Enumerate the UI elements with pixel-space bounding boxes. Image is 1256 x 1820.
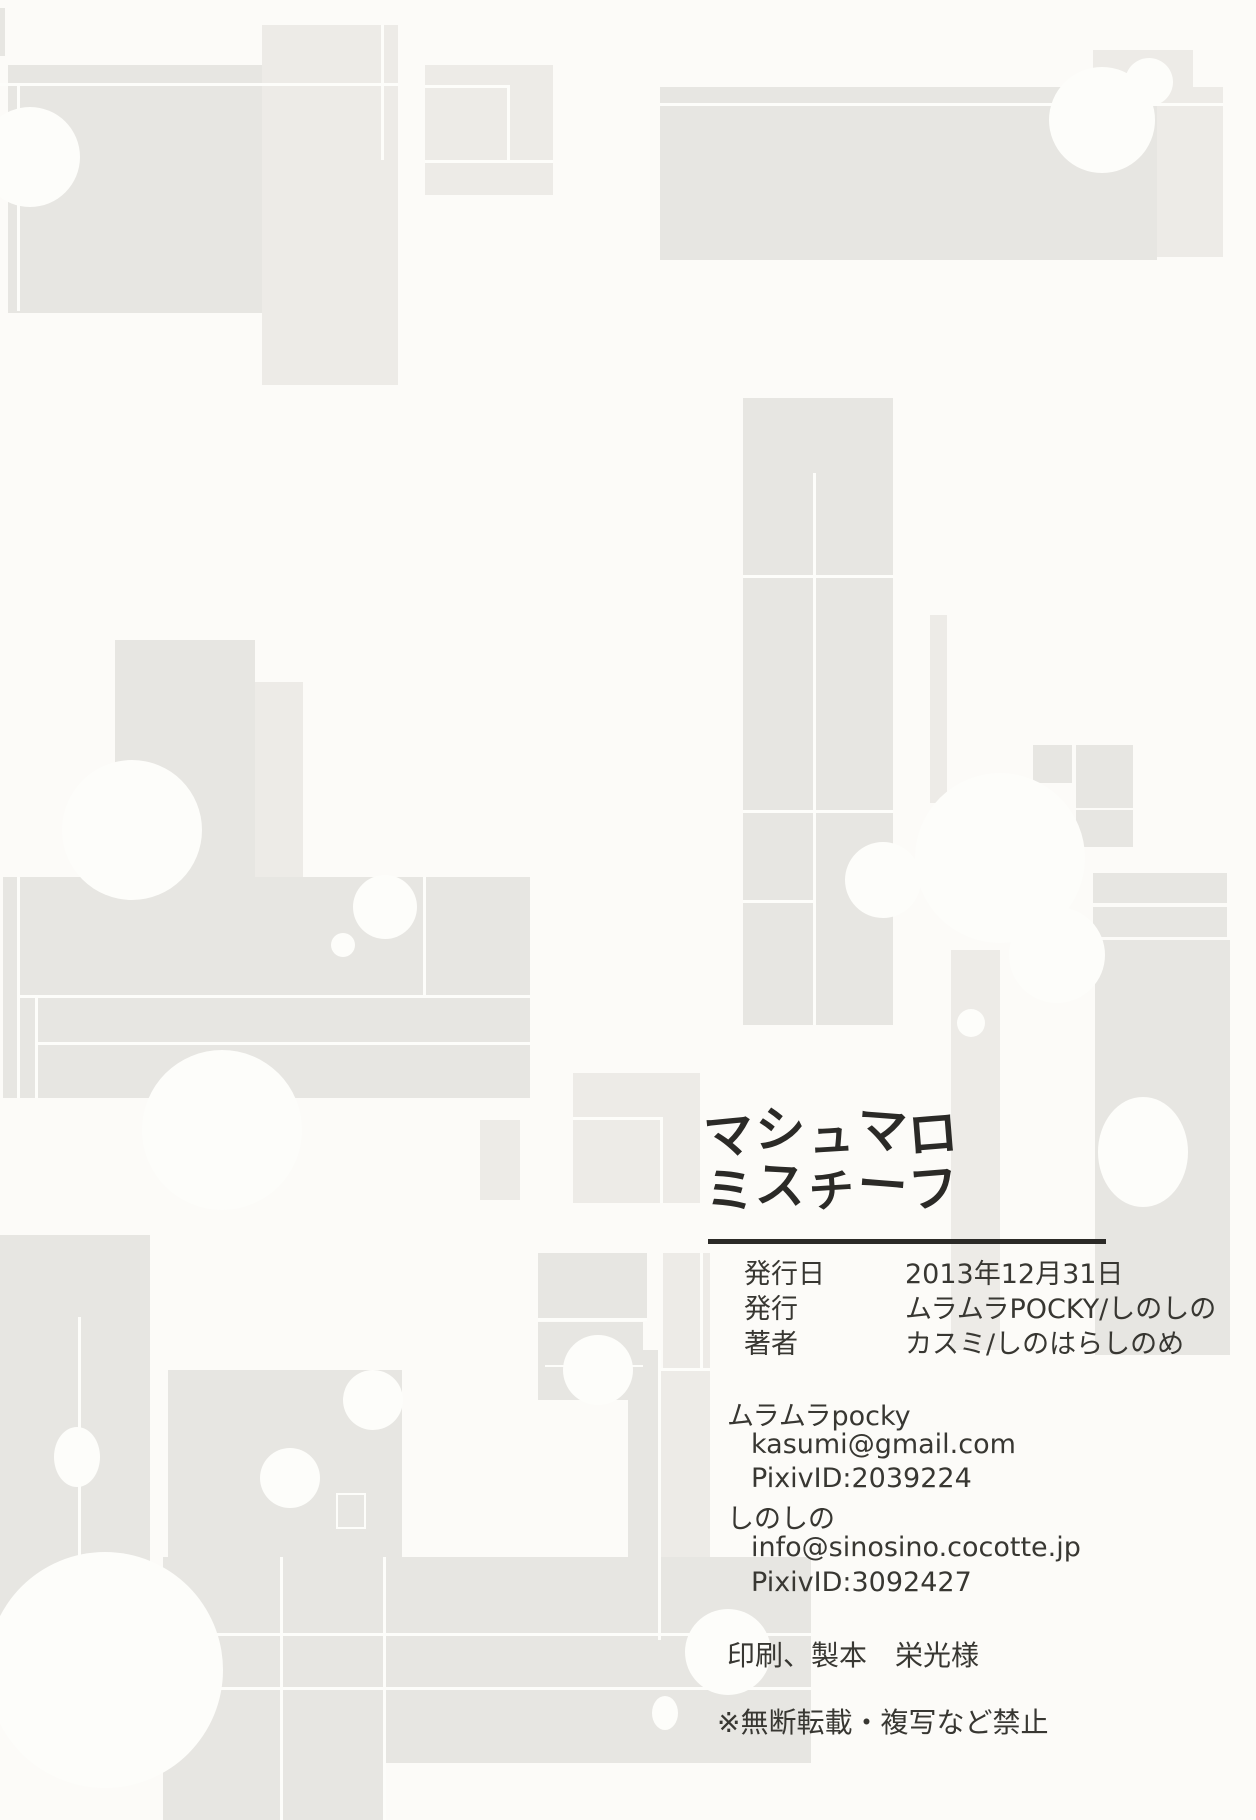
printing-credit: 印刷、製本 栄光様 xyxy=(727,1634,979,1674)
colophon-value-author: カスミ/しのはらしのめ xyxy=(905,1322,1184,1361)
deco-rect xyxy=(930,615,947,803)
deco-rect xyxy=(1093,873,1227,903)
deco-line xyxy=(425,85,508,88)
deco-circle xyxy=(652,1696,678,1730)
deco-line xyxy=(35,1042,530,1045)
deco-line xyxy=(381,25,384,160)
deco-line xyxy=(573,1117,663,1120)
deco-line xyxy=(425,160,553,163)
deco-line xyxy=(538,1318,647,1321)
deco-line xyxy=(17,995,530,998)
deco-circle xyxy=(62,760,202,900)
deco-line xyxy=(507,85,510,163)
deco-rect xyxy=(1033,745,1072,783)
deco-rect xyxy=(538,1253,647,1320)
colophon-label-publish-date: 発行日 xyxy=(744,1252,825,1291)
deco-circle xyxy=(331,933,355,957)
deco-square-outline xyxy=(336,1493,366,1529)
deco-line xyxy=(743,900,815,903)
deco-rect xyxy=(1076,810,1133,847)
deco-rect xyxy=(480,1120,520,1200)
deco-rect xyxy=(1093,907,1227,937)
deco-circle xyxy=(260,1448,320,1508)
deco-line xyxy=(660,1117,663,1203)
deco-rect xyxy=(573,1073,700,1203)
deco-line xyxy=(17,877,20,1098)
colophon-value-publish-date: 2013年12月31日 xyxy=(905,1252,1123,1291)
printing-label: 印刷、製本 xyxy=(727,1634,867,1674)
deco-line xyxy=(0,83,398,86)
colophon-page: マシュマロ ミスチーフ 発行日 2013年12月31日 発行 ムラムラPOCKY… xyxy=(0,0,1256,1820)
contact-email-kasumi: kasumi@gmail.com xyxy=(751,1429,1016,1460)
colophon-value-publisher: ムラムラPOCKY/しのしの xyxy=(905,1287,1216,1326)
title-logo-line1: マシュマロ xyxy=(703,1105,959,1163)
deco-circle xyxy=(957,1009,985,1037)
deco-line xyxy=(35,995,38,1098)
circle-name-shinoshino: しのしの xyxy=(727,1497,835,1536)
deco-circle xyxy=(54,1427,100,1487)
contact-pixiv-id-1: PixivID:2039224 xyxy=(751,1463,972,1494)
deco-circle xyxy=(142,1050,302,1210)
deco-rect xyxy=(255,682,303,877)
deco-rect xyxy=(0,8,5,56)
deco-line xyxy=(743,575,893,578)
colophon-label-author: 著者 xyxy=(744,1322,798,1361)
deco-circle xyxy=(1125,58,1173,106)
deco-circle xyxy=(353,875,417,939)
deco-line xyxy=(813,473,816,1025)
deco-rect xyxy=(163,1763,383,1820)
reproduction-notice: ※無断転載・複写など禁止 xyxy=(717,1701,1048,1741)
deco-rect xyxy=(743,398,893,1025)
deco-rect xyxy=(1076,745,1133,808)
deco-circle xyxy=(845,842,921,918)
divider-rule xyxy=(708,1239,1106,1244)
printing-value: 栄光様 xyxy=(895,1634,979,1674)
contact-email-shinoshino: info@sinosino.cocotte.jp xyxy=(751,1532,1081,1563)
deco-line xyxy=(743,810,893,813)
deco-rect xyxy=(1157,87,1223,257)
deco-circle xyxy=(1009,907,1105,1003)
deco-line xyxy=(660,1368,710,1371)
title-logo-line2: ミスチーフ xyxy=(704,1160,960,1218)
deco-circle xyxy=(343,1370,403,1430)
deco-circle xyxy=(563,1335,633,1405)
deco-line xyxy=(658,1350,661,1640)
deco-rect xyxy=(262,25,398,385)
contact-pixiv-id-2: PixivID:3092427 xyxy=(751,1567,972,1598)
deco-line xyxy=(700,1253,703,1368)
deco-circle xyxy=(1098,1097,1188,1207)
deco-line xyxy=(423,877,426,995)
title-logo: マシュマロ ミスチーフ xyxy=(703,1105,959,1218)
colophon-label-publisher: 発行 xyxy=(744,1287,798,1326)
circle-name-muramura-pocky: ムラムラpocky xyxy=(727,1394,911,1433)
